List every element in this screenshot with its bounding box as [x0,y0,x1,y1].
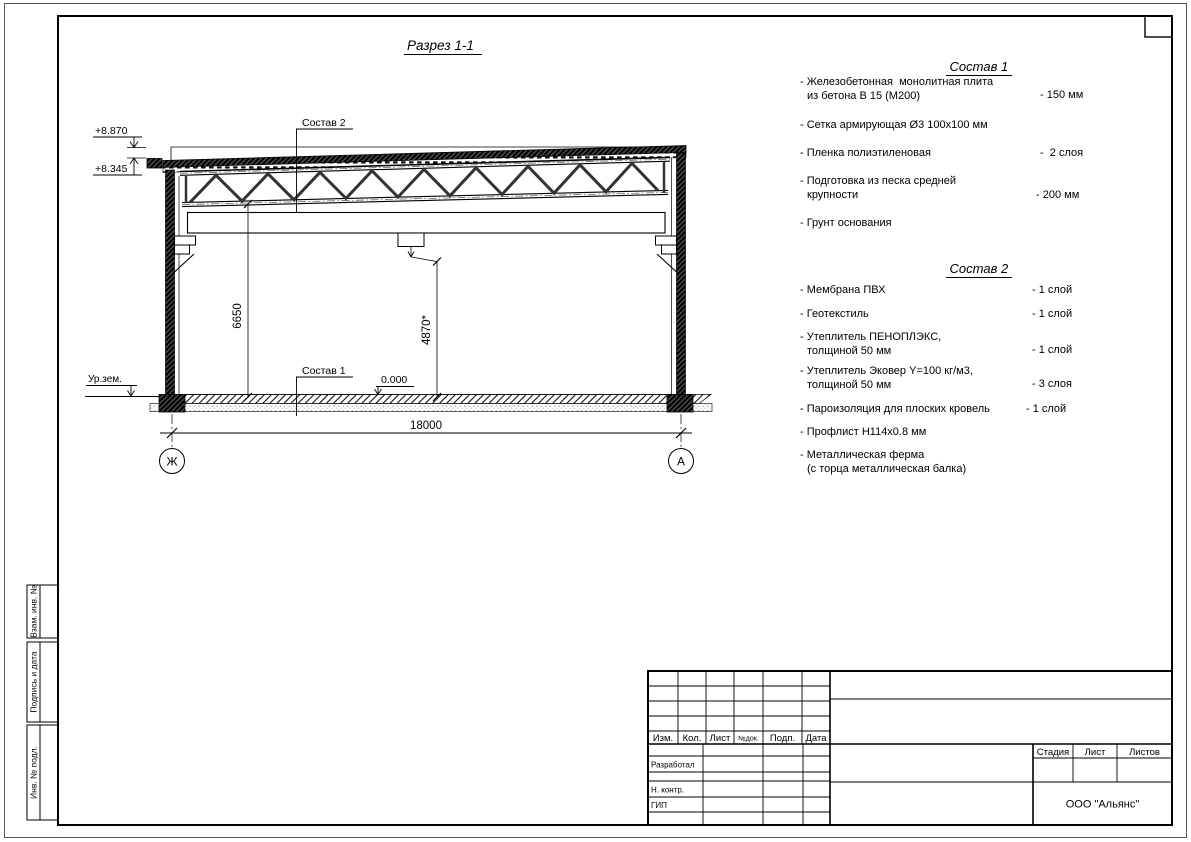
dimension-18000-label: 18000 [410,420,442,432]
tb-company-name: ООО "Альянс" [1066,799,1140,811]
floor-slab [163,395,690,404]
spec1-item3-value: - 2 слоя [1040,147,1083,159]
floor-layers [85,395,712,413]
footing-left [159,395,185,413]
footing-right [667,395,693,413]
tb-col-kol: Кол. [683,733,702,744]
spec2-item6-name: - Профлист Н114х0.8 мм [800,426,926,440]
drawing-sheet: Взам. инв. № Подпись и дата Инв. № подл. [0,0,1191,842]
strip-label-podpis: Подпись и дата [29,651,39,712]
strip-label-vzam: Взам. инв. № [29,585,39,638]
tb-sheet-label: Лист [1085,747,1106,758]
leader-sostav2-label: Состав 2 [302,117,346,129]
column-left [166,170,175,397]
tb-role-developer: Разработал [651,761,695,770]
spec1-item1-value: - 150 мм [1040,89,1083,101]
axis-left-label: Ж [166,455,177,469]
tb-col-data: Дата [805,733,827,744]
ground-level-label: Ур.зем. [88,374,122,385]
ground-level-mark [86,386,137,397]
spec2-item1-name: - Мембрана ПВХ [800,284,885,298]
spec1-item1-name: - Железобетонная монолитная плитаиз бето… [800,76,993,103]
midspan-tab [398,233,424,247]
dimension-4870-label: 4870* [421,314,433,345]
spec1-title: Состав 1 [946,59,1013,76]
tb-role-ncontrol: Н. контр. [651,786,684,795]
axis-markers [160,449,694,474]
spec2-item3-value: - 1 слой [1032,344,1072,356]
tb-col-list: Лист [710,733,731,744]
spec2-item4-value: - 3 слоя [1032,378,1072,390]
elevation-top-label: +8.870 [95,125,128,137]
leader-sostav1-label: Состав 1 [302,365,346,377]
tb-col-izm: Изм. [653,733,673,744]
spec1-item2-name: - Сетка армирующая Ø3 100х100 мм [800,119,988,133]
spec2-item4-name: - Утеплитель Эковер Y=100 кг/м3,толщиной… [800,365,973,392]
tb-col-podp: Подп. [770,733,795,744]
axis-right-label: А [677,455,685,469]
spec2-item2-value: - 1 слой [1032,308,1072,320]
spec1-item4-value: - 200 мм [1036,189,1079,201]
spec2-item5-value: - 1 слой [1026,403,1066,415]
crane-beam [175,213,677,273]
corner-stamp-box [1145,16,1172,37]
sand-bed [150,404,712,412]
column-right [677,153,686,397]
spec2-item5-name: - Пароизоляция для плоских кровель [800,403,990,417]
roof-end-cap [147,159,162,169]
strip-label-inv: Инв. № подл. [29,746,39,799]
tb-role-gip: ГИП [651,801,667,810]
drawing-title: Разрез 1-1 [407,38,474,53]
spec2-title: Состав 2 [946,261,1013,278]
section-drawing-svg: Взам. инв. № Подпись и дата Инв. № подл. [0,0,1191,842]
spec2-item3-name: - Утеплитель ПЕНОПЛЭКС,толщиной 50 мм [800,331,941,358]
zero-level-mark [375,387,415,395]
spec2-item2-name: - Геотекстиль [800,308,869,322]
spec2-item7-name: - Металлическая ферма(с торца металличес… [800,449,966,476]
spec1-item5-name: - Грунт основания [800,217,892,231]
tb-col-ndok: №док. [738,736,759,743]
tb-sheets-label: Листов [1129,747,1160,758]
spec1-item4-name: - Подготовка из песка среднейкрупности [800,175,956,202]
tb-stage-label: Стадия [1037,747,1069,758]
sheet-frame [5,4,1187,838]
spec1-item3-name: - Пленка полиэтиленовая [800,147,931,161]
spec2-item1-value: - 1 слой [1032,284,1072,296]
zero-level-label: 0.000 [381,374,407,386]
dimension-6650-label: 6650 [232,303,244,329]
elevation-eaves-label: +8.345 [95,163,128,175]
